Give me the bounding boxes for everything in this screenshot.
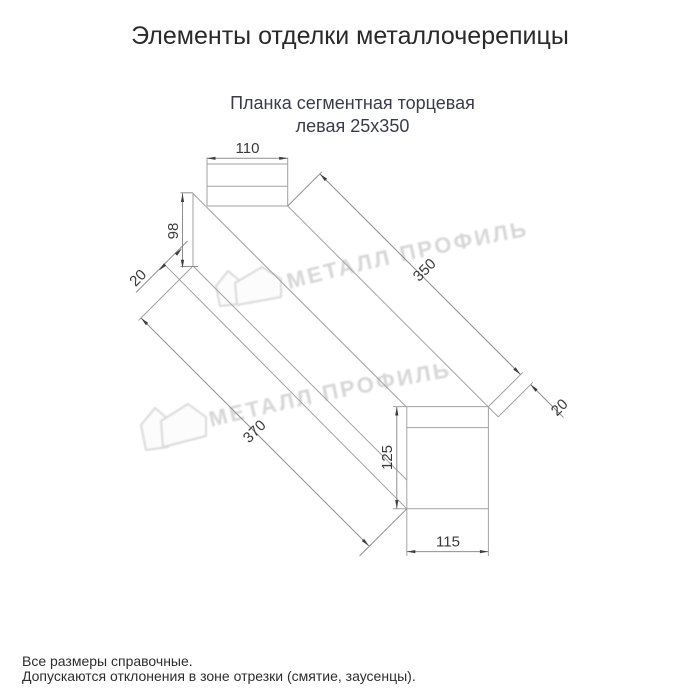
svg-text:20: 20 xyxy=(126,266,150,290)
svg-text:125: 125 xyxy=(379,445,396,470)
svg-text:98: 98 xyxy=(165,223,182,240)
svg-text:МЕТАЛЛ ПРОФИЛЬ: МЕТАЛЛ ПРОФИЛЬ xyxy=(284,216,530,294)
svg-text:115: 115 xyxy=(436,534,460,551)
svg-text:20: 20 xyxy=(548,396,572,420)
svg-text:110: 110 xyxy=(236,140,260,157)
